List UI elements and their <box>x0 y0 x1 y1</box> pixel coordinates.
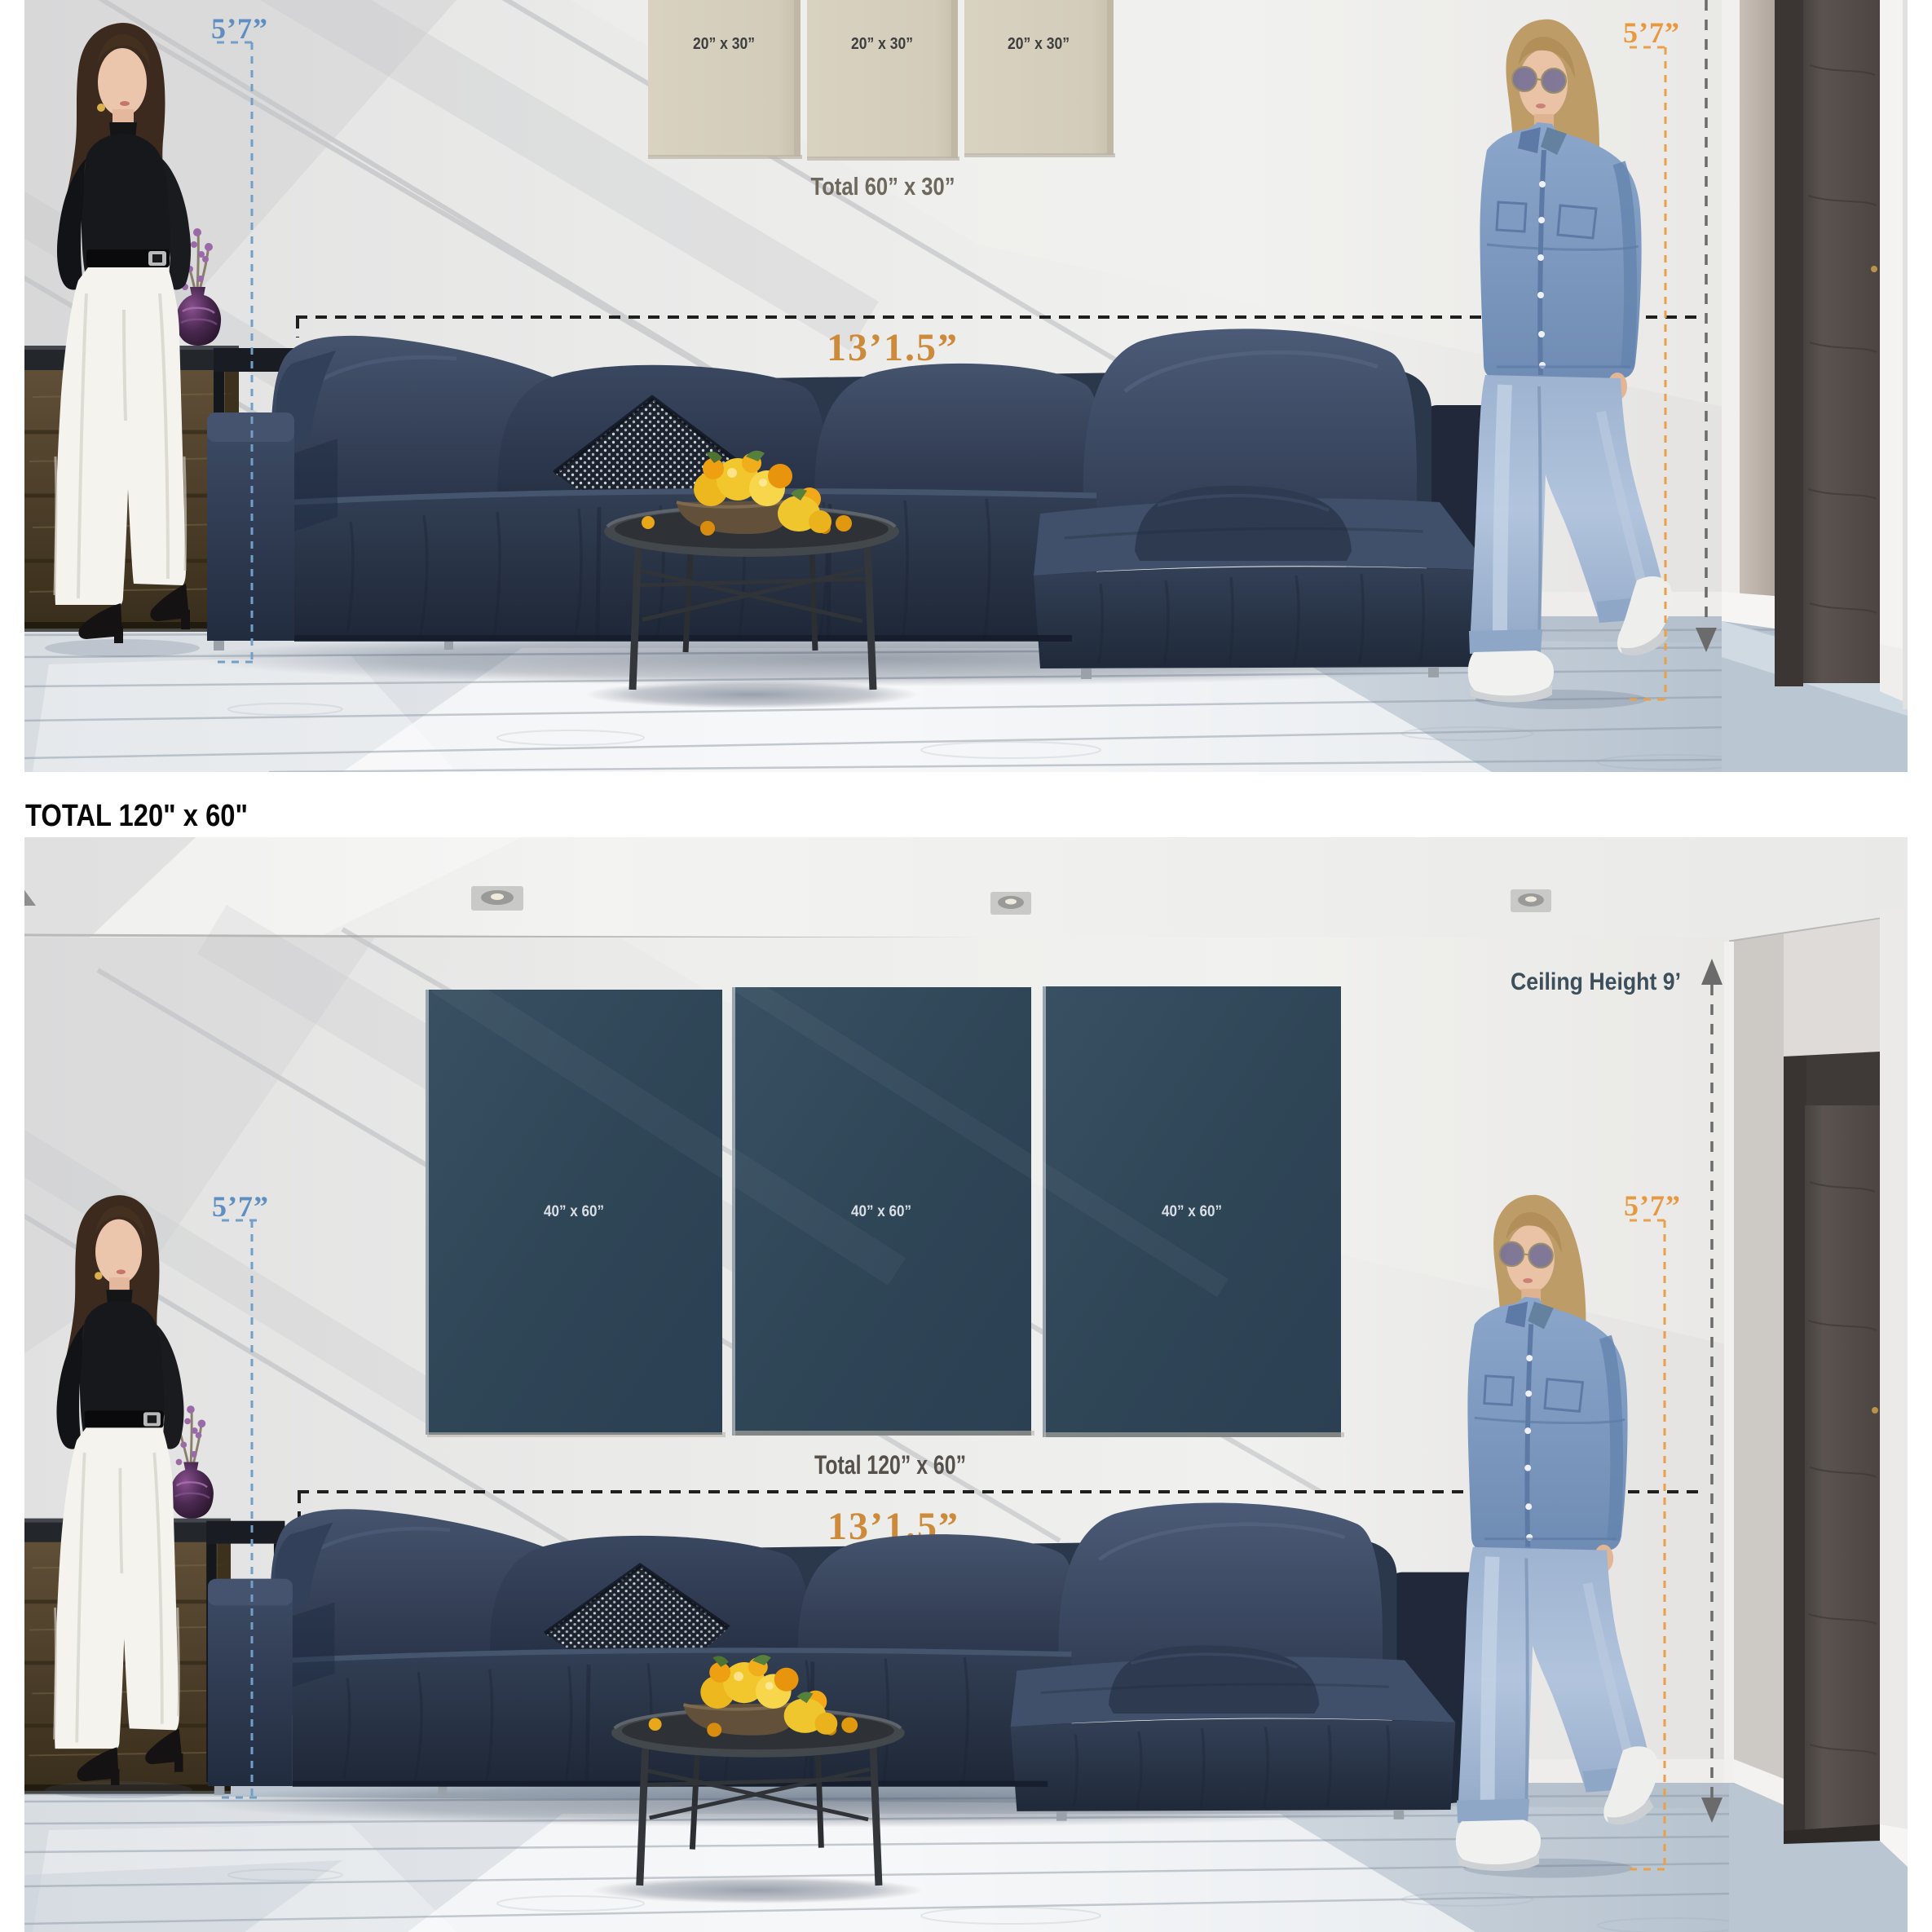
svg-text:20” x 30”: 20” x 30” <box>851 35 913 53</box>
svg-text:Total 120” x 60”: Total 120” x 60” <box>814 1450 966 1480</box>
svg-text:20” x 30”: 20” x 30” <box>693 35 755 53</box>
svg-text:13’1.5”: 13’1.5” <box>827 326 959 369</box>
svg-text:40” x 60”: 40” x 60” <box>544 1203 604 1220</box>
svg-text:TOTAL 120" x 60": TOTAL 120" x 60" <box>25 799 248 833</box>
svg-text:Total 60” x 30”: Total 60” x 30” <box>811 172 955 201</box>
svg-text:5’7”: 5’7” <box>211 12 268 45</box>
svg-text:40” x 60”: 40” x 60” <box>851 1203 911 1220</box>
svg-text:Ceiling Height 9’: Ceiling Height 9’ <box>1511 968 1681 995</box>
svg-text:20” x 30”: 20” x 30” <box>1008 35 1070 53</box>
svg-text:5’7”: 5’7” <box>1624 1189 1681 1222</box>
svg-text:5’7”: 5’7” <box>212 1190 269 1223</box>
svg-text:40” x 60”: 40” x 60” <box>1162 1203 1222 1220</box>
svg-text:5’7”: 5’7” <box>1623 16 1680 49</box>
